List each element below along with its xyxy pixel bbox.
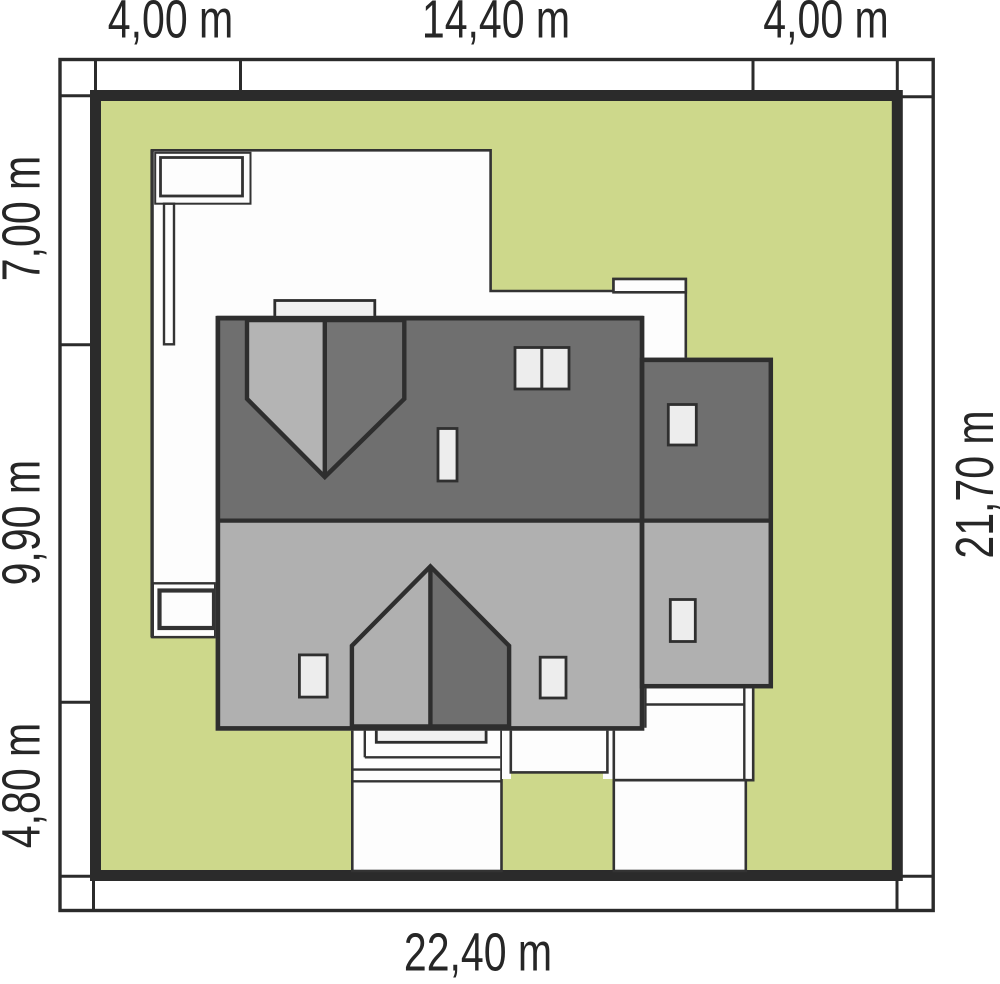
- svg-text:4,80 m: 4,80 m: [0, 723, 52, 848]
- svg-text:22,40 m: 22,40 m: [404, 923, 552, 979]
- svg-text:9,90 m: 9,90 m: [0, 460, 52, 585]
- svg-text:14,40 m: 14,40 m: [422, 0, 570, 50]
- svg-text:7,00 m: 7,00 m: [0, 156, 52, 281]
- svg-text:4,00 m: 4,00 m: [763, 0, 888, 50]
- svg-text:21,70 m: 21,70 m: [946, 410, 1000, 558]
- svg-text:4,00 m: 4,00 m: [108, 0, 233, 50]
